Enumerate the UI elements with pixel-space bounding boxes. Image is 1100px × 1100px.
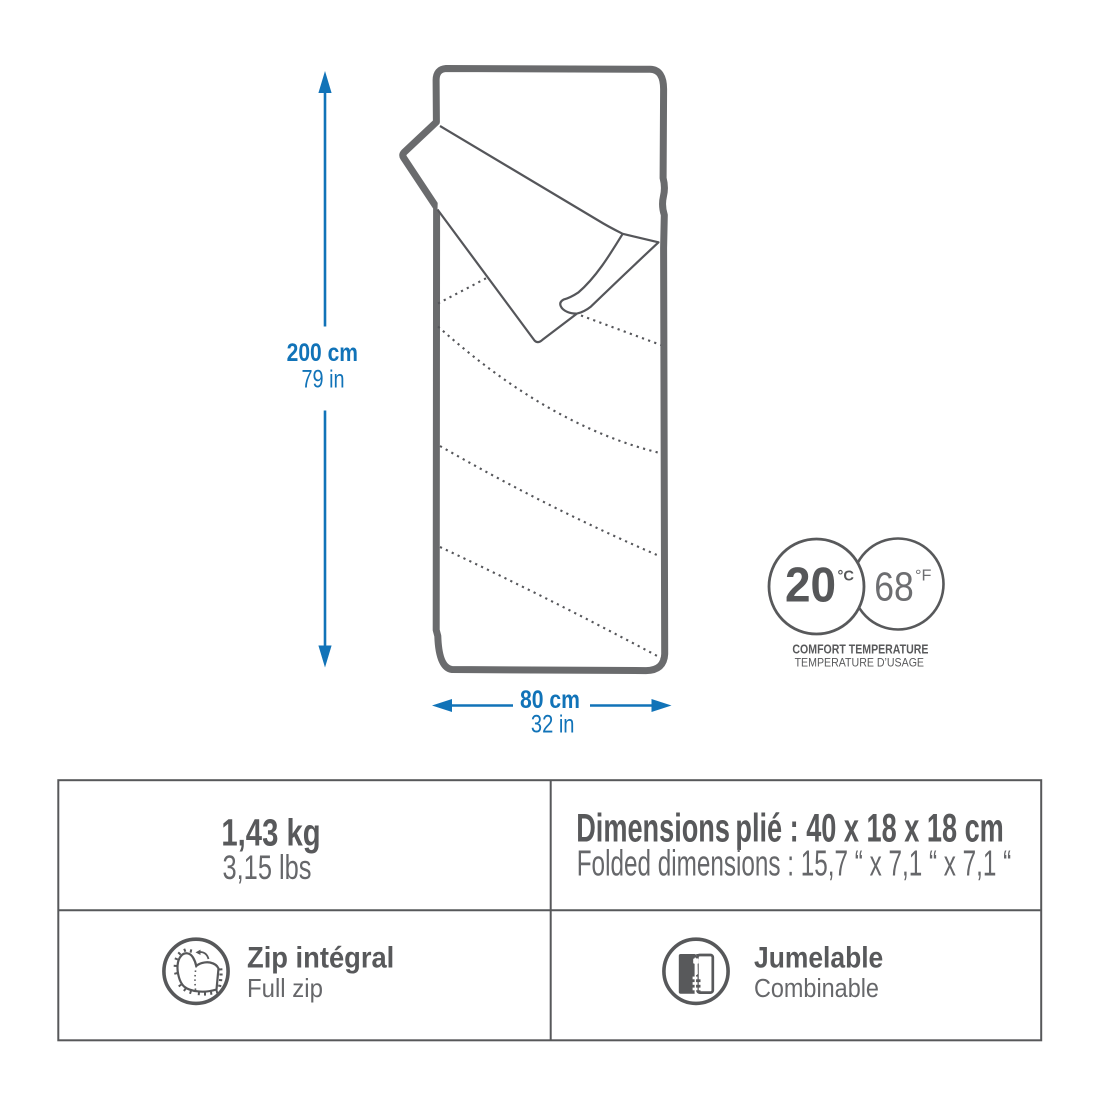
svg-text:Folded dimensions : 15,7 “ x 7: Folded dimensions : 15,7 “ x 7,1 “ x 7,1… <box>577 842 1012 883</box>
svg-text:68: 68 <box>874 564 914 610</box>
svg-text:200 cm: 200 cm <box>287 338 358 366</box>
svg-text:Jumelable: Jumelable <box>754 940 883 974</box>
svg-text:TEMPERATURE D’USAGE: TEMPERATURE D’USAGE <box>795 657 925 670</box>
svg-text:Full zip: Full zip <box>247 974 323 1003</box>
svg-text:°C: °C <box>838 568 855 584</box>
svg-text:20: 20 <box>785 558 836 613</box>
svg-text:Zip intégral: Zip intégral <box>247 941 394 974</box>
svg-text:°F: °F <box>915 568 932 585</box>
svg-text:32 in: 32 in <box>531 710 575 739</box>
svg-text:COMFORT TEMPERATURE: COMFORT TEMPERATURE <box>792 643 928 657</box>
svg-text:79 in: 79 in <box>301 365 344 393</box>
svg-text:3,15 lbs: 3,15 lbs <box>222 849 311 887</box>
svg-text:Combinable: Combinable <box>754 975 879 1003</box>
